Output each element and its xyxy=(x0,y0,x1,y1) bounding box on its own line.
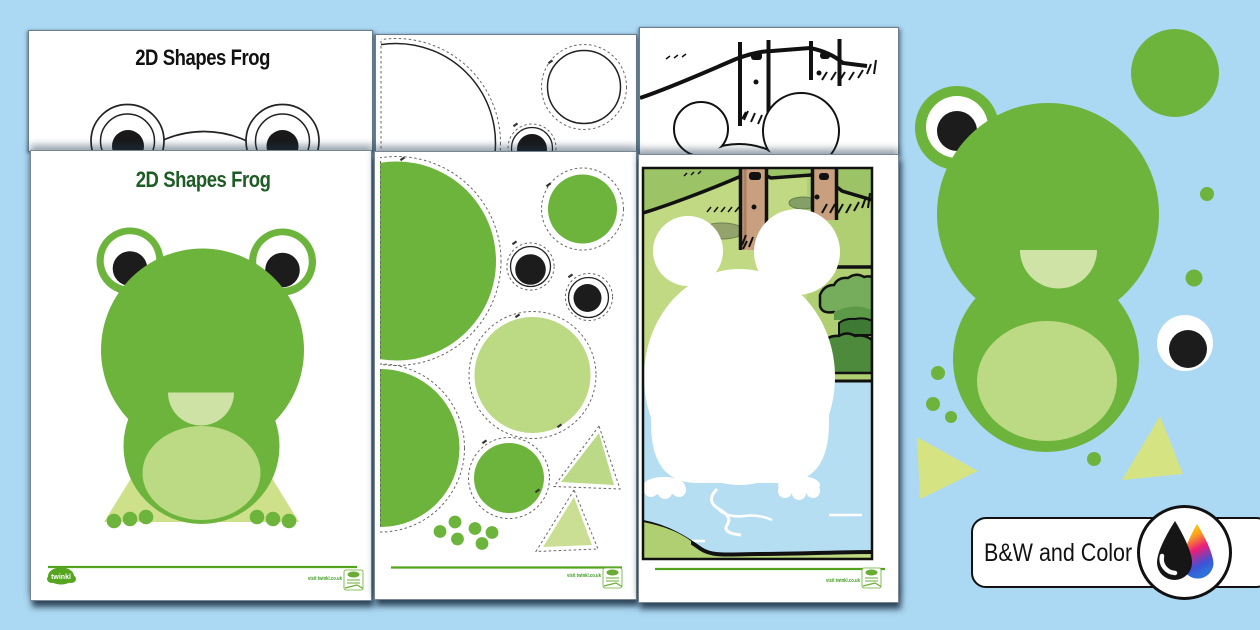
svg-text:visit twinkl.co.uk: visit twinkl.co.uk xyxy=(308,576,343,582)
svg-text:visit twinkl.co.uk: visit twinkl.co.uk xyxy=(567,573,602,579)
svg-text:visit twinkl.co.uk: visit twinkl.co.uk xyxy=(826,578,861,584)
svg-text:twinkl: twinkl xyxy=(51,574,71,581)
